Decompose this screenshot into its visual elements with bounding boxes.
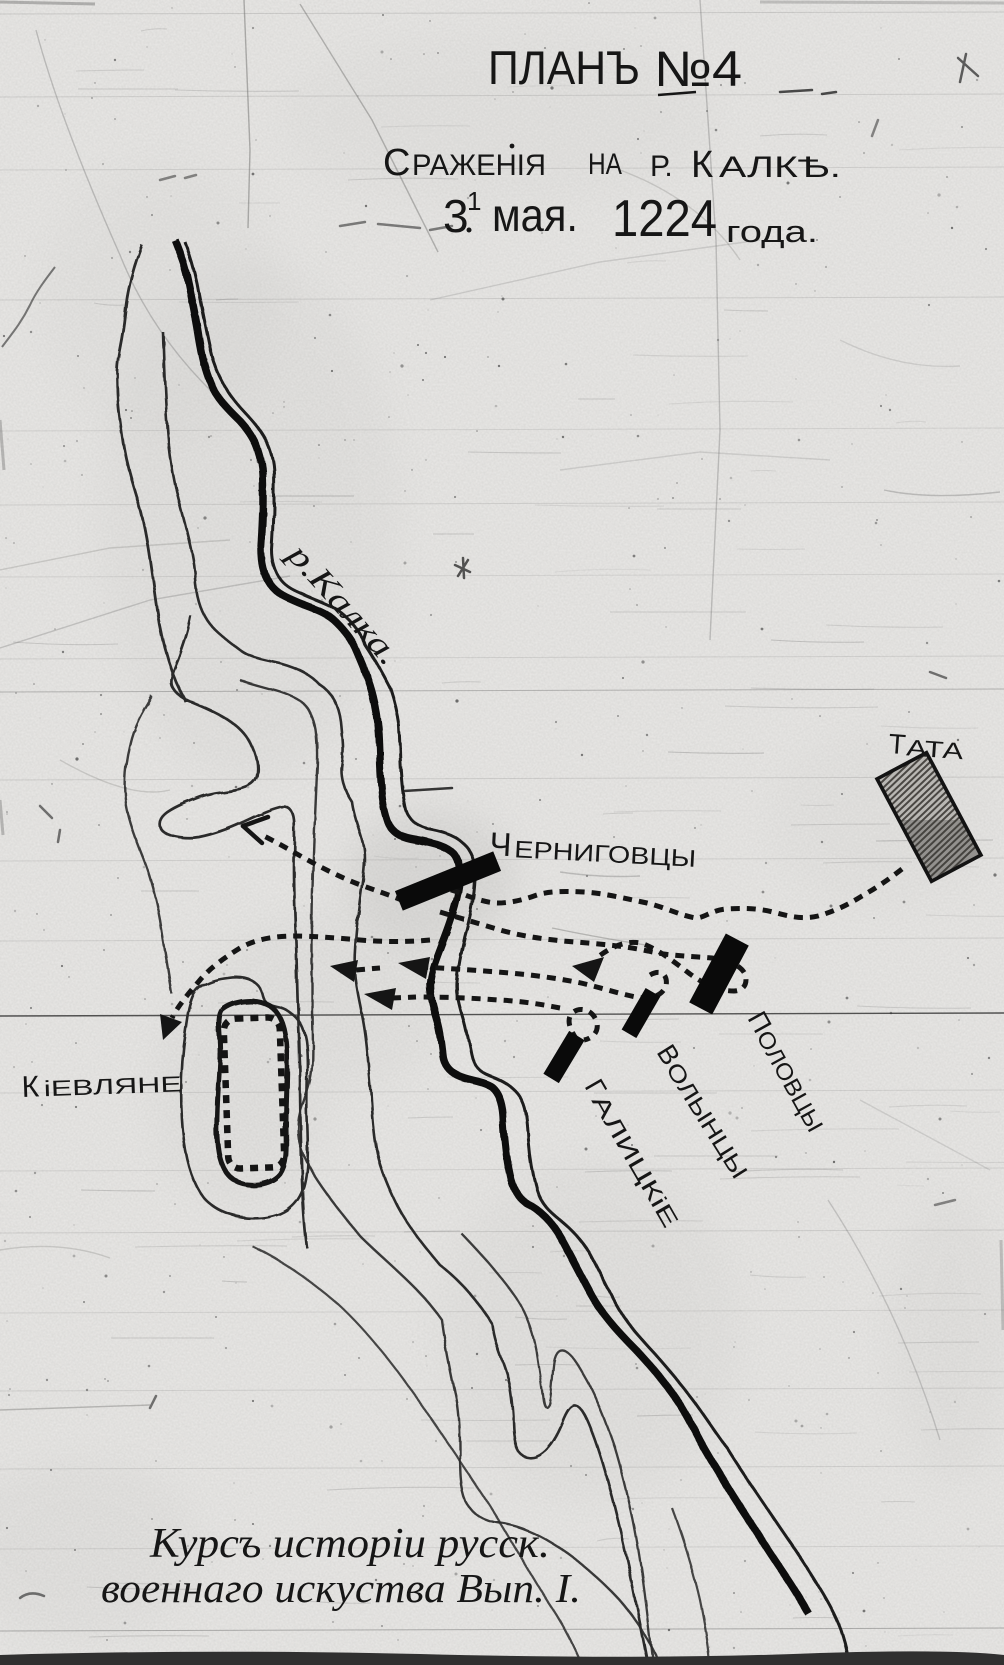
- svg-text:Ч: Ч: [489, 825, 513, 863]
- svg-text:мая.: мая.: [492, 189, 578, 241]
- svg-text:3: 3: [443, 190, 469, 242]
- svg-text:АТА: АТА: [906, 734, 966, 764]
- svg-text:1: 1: [467, 186, 481, 216]
- svg-text:АЛКѢ.: АЛКѢ.: [719, 151, 841, 184]
- svg-text:К: К: [691, 144, 713, 186]
- svg-text:года.: года.: [726, 214, 818, 249]
- svg-text:Курсъ исторіи русск.: Курсъ исторіи русск.: [149, 1521, 550, 1567]
- svg-text:Т: Т: [888, 728, 907, 760]
- svg-text:Р.: Р.: [650, 150, 673, 183]
- svg-text:№4: №4: [654, 41, 742, 97]
- svg-text:К: К: [21, 1070, 40, 1104]
- svg-text:ПЛАНЪ: ПЛАНЪ: [488, 41, 640, 94]
- svg-text:РАЖЕНІЯ: РАЖЕНІЯ: [412, 149, 546, 182]
- svg-text:НА: НА: [588, 148, 622, 181]
- svg-text:С: С: [383, 142, 410, 184]
- svg-text:военнаго искуства Вып. I.: военнаго искуства Вып. I.: [101, 1565, 581, 1611]
- svg-text:іЕВЛЯНЕ: іЕВЛЯНЕ: [43, 1071, 182, 1101]
- svg-text:1224: 1224: [612, 190, 717, 248]
